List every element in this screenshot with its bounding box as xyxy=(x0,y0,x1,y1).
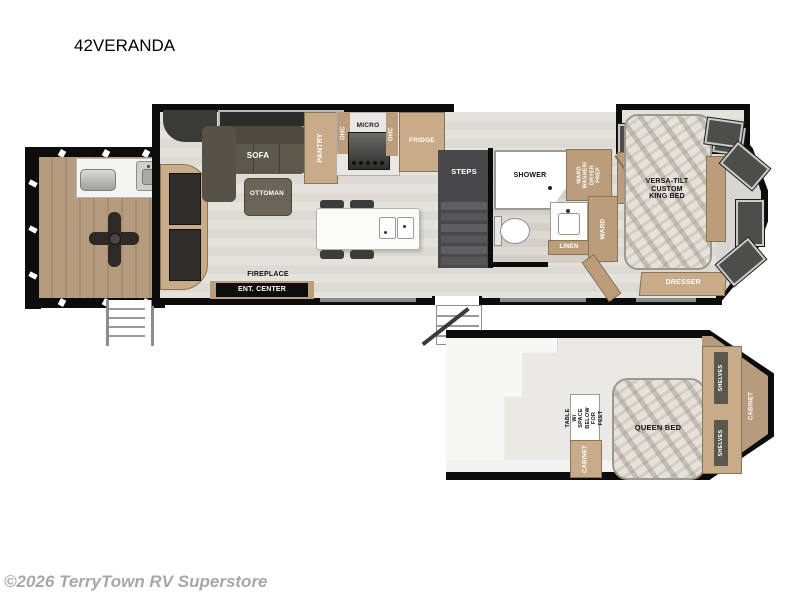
fireplace-label: FIREPLACE xyxy=(230,271,306,279)
loft-shelves-bottom: SHELVES xyxy=(714,420,728,466)
loft-cabinet-right: CABINET xyxy=(744,384,760,428)
queen-bed-label: QUEEN BED xyxy=(616,424,700,432)
ent-center: ENT. CENTER xyxy=(216,283,308,297)
bottom-window-3-icon xyxy=(636,298,696,302)
loft-cabinet-left-label: CABINET xyxy=(583,445,590,473)
loft-cabinet-left: CABINET xyxy=(570,440,602,478)
stairs-unit: STEPS xyxy=(438,150,490,268)
loft-table: TABLE W/ SPACE BELOW FOR FEET xyxy=(570,394,600,442)
bottom-window-2-icon xyxy=(500,298,586,302)
ward-washer-label: WARD WASHER/ DRYER PREP xyxy=(576,161,601,188)
ohc-left-label: OHC xyxy=(340,126,347,140)
patio-door-icon xyxy=(160,164,208,290)
bath-wall-bottom xyxy=(488,262,548,267)
dresser-label: DRESSER xyxy=(641,279,726,287)
toilet-icon xyxy=(500,218,530,244)
linen-label: LINEN xyxy=(549,244,589,251)
entry-door-opening xyxy=(432,296,482,305)
pantry: PANTRY xyxy=(304,112,338,184)
queen-bed: QUEEN BED xyxy=(612,378,706,480)
steps-label: STEPS xyxy=(438,168,490,176)
loft-wall-top xyxy=(446,330,710,338)
page-title: 42VERANDA xyxy=(74,36,175,56)
ward-washer: WARD WASHER/ DRYER PREP xyxy=(566,149,612,201)
stool-icon xyxy=(350,250,374,259)
king-bed-label: VERSA-TILT CUSTOM KING BED xyxy=(628,178,706,201)
loft-shelves-top: SHELVES xyxy=(714,352,728,404)
linen: LINEN xyxy=(548,240,590,255)
ohc-right-label: OHC xyxy=(389,127,396,141)
loft-table-label: TABLE W/ SPACE BELOW FOR FEET xyxy=(565,407,605,428)
stove-icon xyxy=(348,132,390,170)
shower-label: SHOWER xyxy=(498,172,562,180)
sofa-chaise xyxy=(202,126,236,202)
ward-label: WARD xyxy=(599,219,606,240)
pantry-label: PANTRY xyxy=(317,133,325,162)
stool-icon xyxy=(320,250,344,259)
copyright-watermark: ©2026 TerryTown RV Superstore xyxy=(4,572,268,592)
sofa-label: SOFA xyxy=(228,152,288,161)
floorplan-canvas: 42VERANDA xyxy=(0,0,800,600)
bath-wall-left xyxy=(488,148,493,268)
ohc-right: OHC xyxy=(386,112,398,156)
micro-label: MICRO xyxy=(348,122,388,129)
ent-center-label: ENT. CENTER xyxy=(216,286,308,294)
shelves-bottom-label: SHELVES xyxy=(718,430,724,457)
king-bed: VERSA-TILT CUSTOM KING BED xyxy=(624,114,712,270)
bottom-window-1-icon xyxy=(320,298,416,302)
dresser: DRESSER xyxy=(639,272,728,296)
nightstand xyxy=(706,156,726,242)
loft-cabinet-right-label: CABINET xyxy=(749,392,756,420)
veranda-table-hub xyxy=(109,233,121,245)
fridge-label: FRIDGE xyxy=(400,137,444,144)
shelves-top-label: SHELVES xyxy=(718,365,724,392)
grill-icon xyxy=(80,169,116,191)
ward-tall: WARD xyxy=(588,196,618,262)
veranda-steps-icon xyxy=(106,300,154,346)
ottoman-label: OTTOMAN xyxy=(240,190,294,197)
kitchen-island xyxy=(316,208,420,250)
wall-left xyxy=(152,104,160,306)
